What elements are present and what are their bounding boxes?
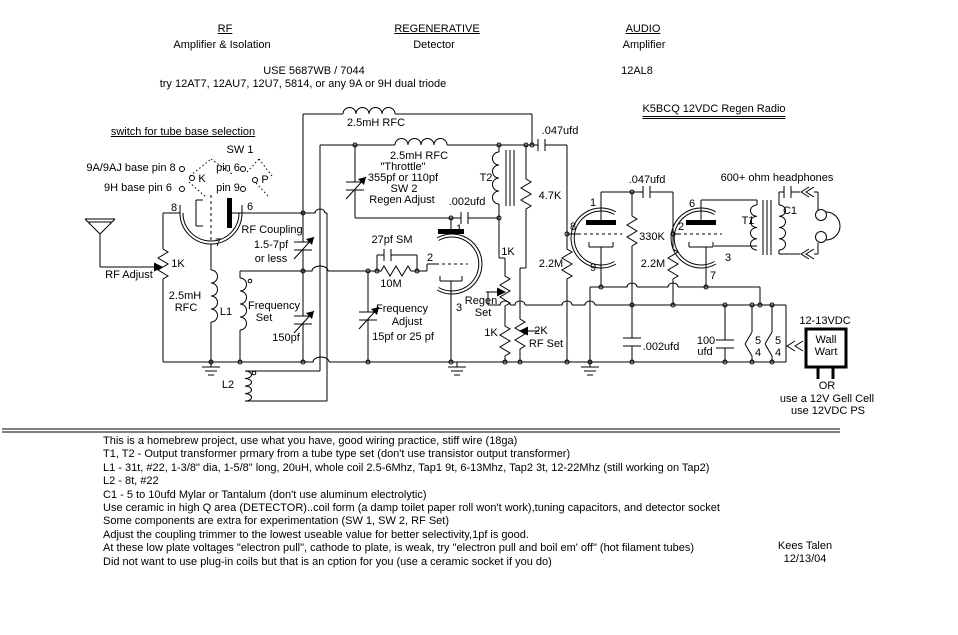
r330k-resistor bbox=[627, 212, 637, 252]
det-pin2-label: 2 bbox=[427, 252, 433, 265]
freq-adj-label-3: 15pf or 25 pf bbox=[372, 331, 434, 344]
rf-coupling-label: RF Coupling bbox=[241, 224, 302, 237]
note-line: L2 - 8t, #22 bbox=[103, 475, 720, 488]
note-line: Adjust the coupling trimmer to the lowes… bbox=[103, 529, 720, 542]
det-047-cap bbox=[538, 139, 545, 151]
note-line: T1, T2 - Output transformer prmary from … bbox=[103, 448, 720, 461]
rf-coupling-less: or less bbox=[255, 253, 287, 266]
audio-section-subtitle: Amplifier bbox=[623, 39, 666, 52]
audio-pin2-label: 2 bbox=[678, 221, 684, 234]
note-line: At these low plate voltages "electron pu… bbox=[103, 542, 720, 555]
note-line: This is a homebrew project, use what you… bbox=[103, 435, 720, 448]
antenna-icon bbox=[85, 219, 146, 267]
regen-section-subtitle: Detector bbox=[413, 39, 455, 52]
audio-pin9-label: 9 bbox=[590, 262, 596, 275]
c27-label: 27pf SM bbox=[372, 234, 413, 247]
l1-label: L1 bbox=[220, 306, 232, 319]
credit-name: Kees Talen bbox=[778, 540, 832, 553]
c1-cap bbox=[784, 186, 791, 198]
sw1-contact-p: P bbox=[261, 174, 268, 187]
detector-circuit bbox=[303, 108, 578, 363]
audio-tube-2 bbox=[671, 208, 716, 268]
separator-rule bbox=[2, 429, 840, 432]
sw1-name: SW 1 bbox=[227, 144, 254, 157]
tube-use-note: USE 5687WB / 7044 bbox=[263, 65, 365, 78]
det-pin3-label: 3 bbox=[456, 302, 462, 315]
vdc-label: 12-13VDC bbox=[799, 315, 850, 328]
note-line: Use ceramic in high Q area (DETECTOR)..c… bbox=[103, 502, 720, 515]
credit-date: 12/13/04 bbox=[778, 553, 832, 566]
rf-coupling-value: 1.5-7pf bbox=[254, 239, 288, 252]
l2-coil bbox=[245, 371, 252, 401]
regen-set-label-2: Set bbox=[475, 307, 492, 320]
rf-pin7-label: 7 bbox=[215, 237, 221, 250]
vdc-ps-label: use 12VDC PS bbox=[791, 405, 865, 418]
pwr-100-label-2: ufd bbox=[697, 346, 712, 359]
rf-rfc-label-2: RFC bbox=[175, 302, 198, 315]
sw1-row-9h: 9H base pin 6 bbox=[104, 182, 172, 195]
note-line: Some components are extra for experiment… bbox=[103, 515, 720, 528]
pwr-002-cap bbox=[623, 338, 641, 346]
sw1-contact-k: K bbox=[198, 173, 205, 186]
switch-b-4: 4 bbox=[775, 347, 781, 360]
note-line: Did not want to use plug-in coils but th… bbox=[103, 556, 720, 569]
sw1-row-9a: 9A/9AJ base pin 8 bbox=[86, 162, 175, 175]
rfc-top-label: 2.5mH RFC bbox=[347, 117, 405, 130]
headphones-icon bbox=[816, 210, 841, 243]
c1-label: C1 bbox=[783, 205, 797, 218]
project-title: K5BCQ 12VDC Regen Radio bbox=[642, 103, 785, 119]
r10m-label: 10M bbox=[380, 278, 401, 291]
audio-tube-type: 12AL8 bbox=[621, 65, 653, 78]
l2-label: L2 bbox=[222, 379, 234, 392]
audio-pin3-label: 3 bbox=[725, 252, 731, 265]
audio-pin8-label: 8 bbox=[570, 221, 576, 234]
t2-label: T2 bbox=[480, 172, 493, 185]
rfc-top-coil bbox=[343, 108, 395, 115]
regen-adjust-label: Regen Adjust bbox=[369, 194, 434, 207]
rf-1k-label: 1K bbox=[171, 258, 184, 271]
wall-wart-label-2: Wart bbox=[815, 346, 838, 359]
rf-section-title: RF bbox=[218, 23, 233, 36]
note-line: C1 - 5 to 10ufd Mylar or Tantalum (don't… bbox=[103, 489, 720, 502]
det-pin1-label: 1 bbox=[456, 223, 462, 236]
r10m-resistor bbox=[377, 266, 417, 276]
det-002-label: .002ufd bbox=[449, 196, 486, 209]
freq-adj-label-2: Adjust bbox=[392, 316, 423, 329]
sw1-pin9: pin 9 bbox=[216, 182, 240, 195]
rf-set-pot bbox=[515, 315, 525, 355]
c150-label: 150pf bbox=[272, 332, 300, 345]
rfc-mid-coil bbox=[395, 139, 447, 146]
c27-cap bbox=[384, 249, 391, 261]
audio-pin1-label: 1 bbox=[590, 197, 596, 210]
sw1-heading: switch for tube base selection bbox=[111, 126, 255, 139]
audio-tube-1 bbox=[571, 208, 616, 268]
audio-047-cap bbox=[643, 186, 650, 198]
freq-set-label-2: Set bbox=[256, 312, 273, 325]
regen-1k-top-label: 1K bbox=[501, 246, 514, 259]
switch-a-4: 4 bbox=[755, 347, 761, 360]
audio-22m-resistor bbox=[668, 245, 678, 285]
schematic-page: RF Amplifier & Isolation REGENERATIVE De… bbox=[0, 0, 958, 635]
audio-pin7-label: 7 bbox=[710, 270, 716, 283]
headphones-label: 600+ ohm headphones bbox=[721, 172, 834, 185]
regen-1k-bot-label: 1K bbox=[484, 327, 497, 340]
power-switch-b bbox=[765, 305, 772, 362]
sw1-pin6: pin 6 bbox=[216, 162, 240, 175]
rf-set-label: RF Set bbox=[529, 338, 563, 351]
r330k-label: 330K bbox=[639, 231, 665, 244]
or-label: OR bbox=[819, 380, 836, 393]
freq-adj-label-1: Frequency bbox=[376, 303, 428, 316]
rf-pin6-label: 6 bbox=[247, 201, 253, 214]
l1-coil bbox=[240, 278, 247, 330]
audio-section-title: AUDIO bbox=[626, 23, 661, 36]
det-047-label: .047ufd bbox=[542, 125, 579, 138]
rf-section-subtitle: Amplifier & Isolation bbox=[173, 39, 270, 52]
r2k-label: 2K bbox=[534, 325, 547, 338]
pwr-002-label: .002ufd bbox=[643, 341, 680, 354]
regen-section-title: REGENERATIVE bbox=[394, 23, 479, 36]
pwr-100-cap bbox=[716, 340, 734, 348]
rf-pin8-label: 8 bbox=[171, 202, 177, 215]
r47k-label: 4.7K bbox=[539, 190, 562, 203]
det-22m-label: 2.2M bbox=[539, 258, 563, 271]
rf-adjust-label: RF Adjust bbox=[105, 269, 153, 282]
audio-22m-label: 2.2M bbox=[641, 258, 665, 271]
t2-coil bbox=[493, 152, 500, 204]
t1-label: T1 bbox=[742, 215, 755, 228]
notes-block: This is a homebrew project, use what you… bbox=[103, 435, 720, 569]
note-line: L1 - 31t, #22, 1-3/8" dia, 1-5/8" long, … bbox=[103, 462, 720, 475]
power-switch-a bbox=[745, 305, 752, 362]
tube-try-note: try 12AT7, 12AU7, 12U7, 5814, or any 9A … bbox=[160, 78, 447, 91]
credit-block: Kees Talen 12/13/04 bbox=[778, 540, 832, 566]
audio-047-label: .047ufd bbox=[629, 174, 666, 187]
r47k-resistor bbox=[521, 175, 531, 215]
det-22m-resistor bbox=[562, 245, 572, 285]
audio-pin6-label: 6 bbox=[689, 198, 695, 211]
